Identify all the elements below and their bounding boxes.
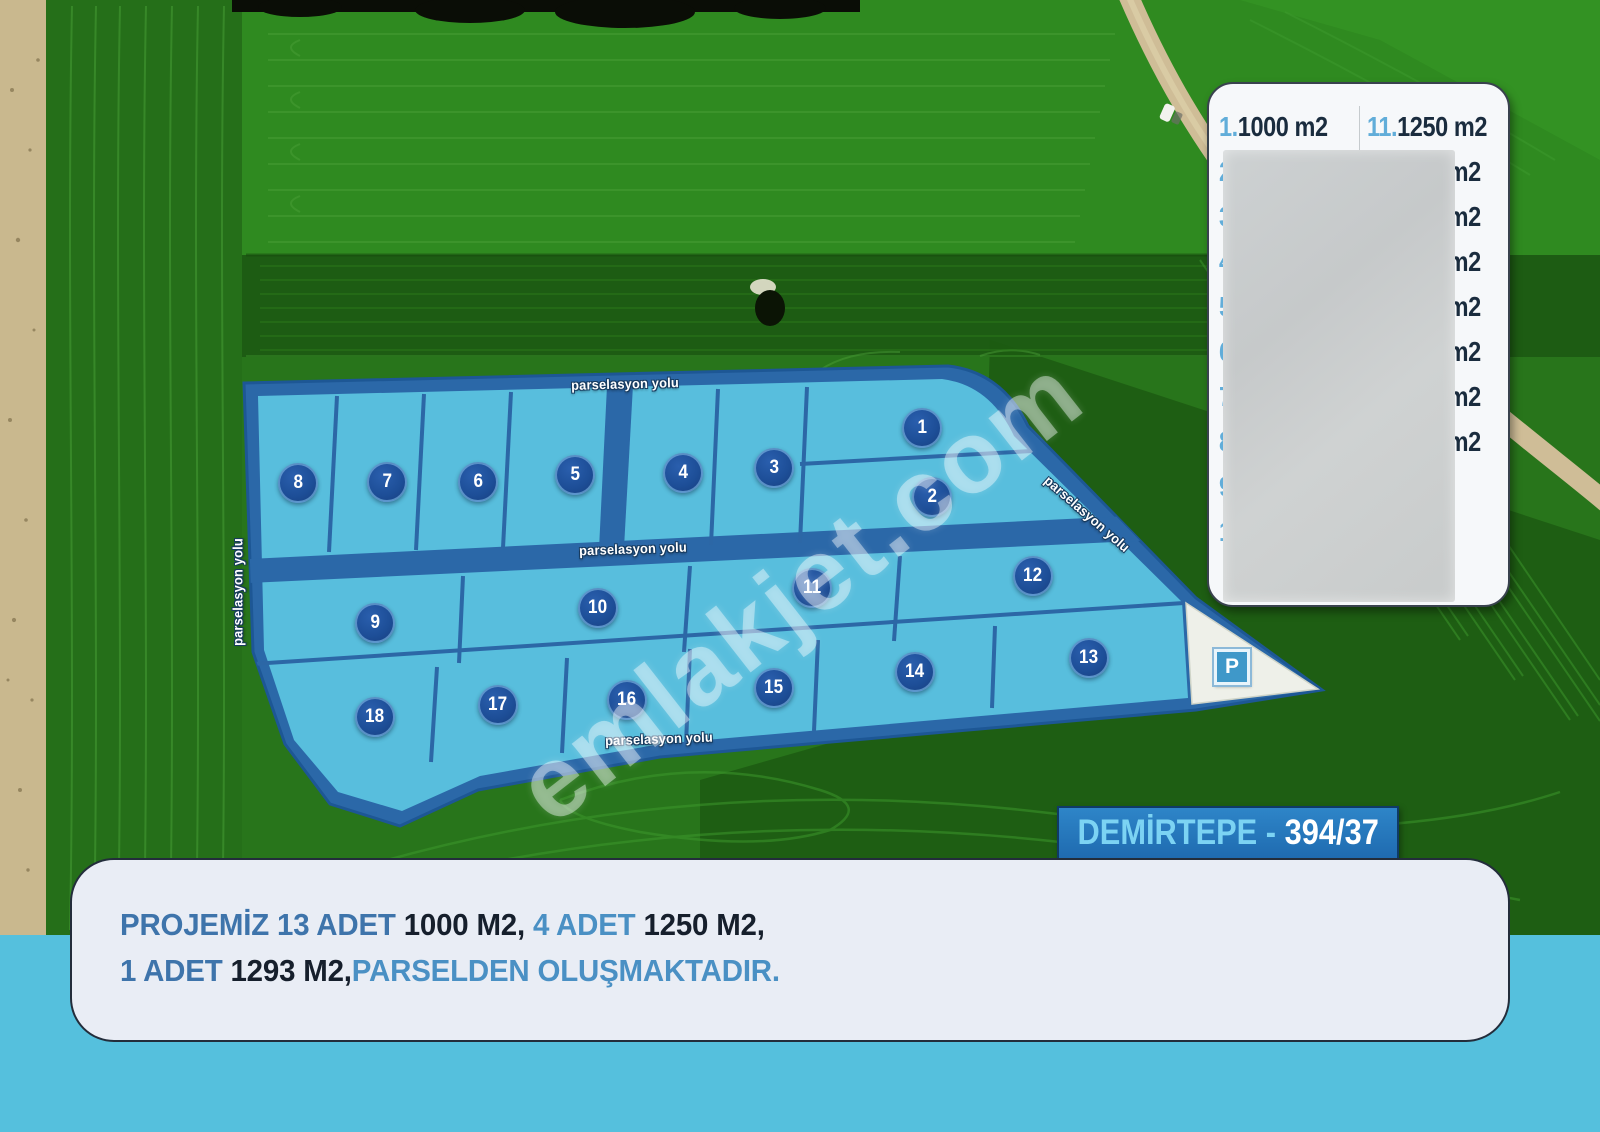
bush [755, 290, 785, 326]
parcel-badge-3: 3 [754, 448, 794, 488]
banner-separator: - [1257, 813, 1284, 852]
info-text-segment: 4 ADET [533, 907, 643, 942]
info-text-segment: 1 ADET [120, 953, 230, 988]
legend-row-left-0: 1.1000 m2 [1219, 104, 1337, 149]
legend-parcel-size: 1250 m2 [1397, 111, 1487, 143]
project-info-card: PROJEMİZ 13 ADET 1000 M2, 4 ADET 1250 M2… [70, 858, 1510, 1042]
parcel-badge-7: 7 [367, 462, 407, 502]
info-text-segment: 1293 M2, [230, 953, 351, 988]
listing-image: 123456789101112131415161718parselasyon y… [0, 0, 1600, 1132]
legend-row-right-0: 11.1250 m2 [1367, 104, 1486, 149]
parcel-badge-4: 4 [663, 453, 703, 493]
parcel-badge-18: 18 [355, 697, 395, 737]
info-text-segment: 1250 M2, [643, 907, 764, 942]
project-info-line1: PROJEMİZ 13 ADET 1000 M2, 4 ADET 1250 M2… [120, 902, 780, 948]
road-label-0: parselasyon yolu [571, 375, 679, 393]
legend-parcel-size: 1000 m2 [1238, 111, 1328, 143]
banner-title: DEMİRTEPE [1077, 813, 1257, 852]
parcel-badge-12: 12 [1013, 556, 1053, 596]
legend-parcel-number: 1. [1219, 111, 1238, 143]
banner-code: 394/37 [1284, 813, 1378, 852]
location-banner: DEMİRTEPE - 394/37 [1057, 806, 1399, 860]
road-label-3: parselasyon yolu [231, 538, 246, 646]
parcel-badge-10: 10 [578, 588, 618, 628]
parcel-size-legend: 1.1000 m22.3.4.5.6.7.8.9.10. 11.1250 m2m… [1207, 82, 1510, 607]
parcel-badge-13: 13 [1069, 638, 1109, 678]
legend-redaction-blur [1223, 150, 1455, 602]
parcel-badge-8: 8 [278, 463, 318, 503]
parcel-badge-6: 6 [458, 462, 498, 502]
parcel-badge-17: 17 [478, 685, 518, 725]
parcel-badge-5: 5 [555, 455, 595, 495]
dirt-strip-left [0, 0, 46, 935]
legend-parcel-number: 11. [1367, 111, 1397, 143]
project-info-text: PROJEMİZ 13 ADET 1000 M2, 4 ADET 1250 M2… [120, 902, 780, 994]
info-text-segment: PARSELDEN OLUŞMAKTADIR. [352, 953, 780, 988]
info-text-segment: 1000 M2, [404, 907, 533, 942]
parcel-badge-14: 14 [895, 652, 935, 692]
parcel-badge-9: 9 [355, 603, 395, 643]
info-text-segment: PROJEMİZ 13 ADET [120, 907, 404, 942]
parking-icon: P [1214, 649, 1250, 685]
project-info-line2: 1 ADET 1293 M2,PARSELDEN OLUŞMAKTADIR. [120, 948, 780, 994]
